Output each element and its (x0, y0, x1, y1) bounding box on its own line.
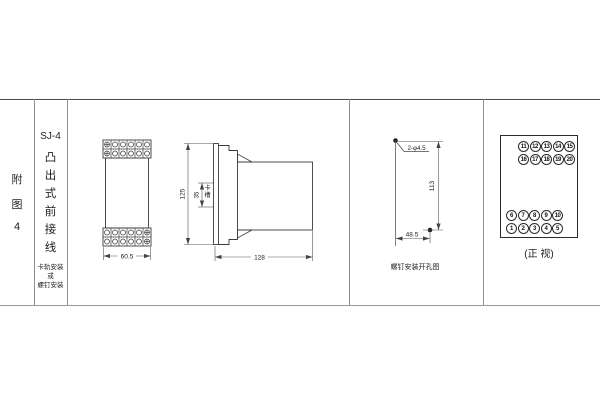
terminal-row: 6 7 8 9 10 (506, 210, 563, 221)
terminal-bottom-group: 6 7 8 9 10 1 2 3 4 5 (506, 210, 563, 234)
mount-note: 卡轨安装 或 螺钉安装 (38, 263, 64, 290)
figure-index-char: 附 (12, 171, 23, 187)
mount-note-line: 卡轨安装 (38, 263, 64, 272)
terminal-circle: 18 (541, 154, 552, 165)
table-divider-4 (483, 99, 484, 305)
front-width-dim-label: 60.5 (121, 253, 134, 260)
type-char: 线 (45, 239, 57, 255)
mount-note-line: 或 (47, 272, 54, 281)
terminal-circle: 3 (529, 223, 540, 234)
drill-vertical-dimension (398, 142, 443, 231)
terminal-panel: 11 12 13 14 15 16 17 18 19 20 6 7 8 9 10 (500, 135, 578, 238)
drill-view: 2-φ4.5 113 48.5 (393, 138, 443, 246)
side-view: 125 35 128 (180, 144, 313, 262)
table-bottom-line (0, 305, 600, 306)
front-view: 60.5 (103, 140, 151, 260)
terminal-circle: 6 (506, 210, 517, 221)
terminal-circle: 19 (553, 154, 564, 165)
terminal-circle: 13 (541, 141, 552, 152)
front-case-body (106, 158, 149, 228)
drill-vertical-dim-label: 113 (429, 180, 436, 191)
terminal-circle: 11 (518, 141, 529, 152)
terminal-circle: 7 (518, 210, 529, 221)
terminal-top-group: 11 12 13 14 15 16 17 18 19 20 (518, 141, 575, 165)
terminal-circle: 9 (541, 210, 552, 221)
model-label: SJ-4 (40, 131, 61, 142)
engineering-drawings-svg: 60.5 125 (85, 130, 450, 265)
mount-note-line: 螺钉安装 (38, 281, 64, 290)
terminal-circle: 2 (518, 223, 529, 234)
side-body (238, 162, 313, 230)
figure-index-char: 图 (12, 196, 23, 212)
terminal-row: 11 12 13 14 15 (518, 141, 575, 152)
terminal-view-caption: (正 视) (500, 245, 578, 260)
side-slot-name-label: 卡槽 (204, 186, 211, 199)
terminal-circle: 10 (552, 210, 563, 221)
type-label: 凸 出 式 前 接 线 (45, 149, 57, 255)
type-char: 接 (45, 221, 57, 237)
type-char: 式 (45, 185, 57, 201)
drill-horizontal-dim-label: 48.5 (406, 232, 419, 239)
drill-caption: 螺钉安装开孔图 (378, 262, 452, 272)
terminal-circle: 4 (541, 223, 552, 234)
terminal-circle: 17 (530, 154, 541, 165)
terminal-row: 1 2 3 4 5 (506, 223, 563, 234)
figure-index-char: 4 (14, 221, 20, 233)
table-divider-2 (67, 99, 68, 305)
terminal-circle: 5 (552, 223, 563, 234)
type-char: 前 (45, 203, 57, 219)
terminal-row: 16 17 18 19 20 (518, 154, 575, 165)
terminal-circle: 12 (530, 141, 541, 152)
terminal-circle: 1 (506, 223, 517, 234)
terminal-circle: 8 (529, 210, 540, 221)
figure-index: 附 图 4 (0, 99, 34, 305)
table-top-line (0, 99, 600, 100)
side-flange (214, 144, 219, 245)
type-char: 凸 (45, 149, 57, 165)
side-depth-dim-label: 128 (254, 254, 265, 261)
terminal-circle: 14 (553, 141, 564, 152)
type-char: 出 (45, 167, 57, 183)
figure-sheet: 附 图 4 SJ-4 凸 出 式 前 接 线 卡轨安装 或 螺钉安装 (0, 0, 600, 400)
title-column: SJ-4 凸 出 式 前 接 线 卡轨安装 或 螺钉安装 (34, 99, 67, 305)
side-slot-dim-label: 35 (195, 191, 201, 198)
terminal-circle: 16 (518, 154, 529, 165)
drill-hole-spec-label: 2-φ4.5 (407, 145, 426, 152)
side-height-dim-label: 125 (180, 188, 187, 199)
terminal-circle: 20 (564, 154, 575, 165)
terminal-circle: 15 (564, 141, 575, 152)
